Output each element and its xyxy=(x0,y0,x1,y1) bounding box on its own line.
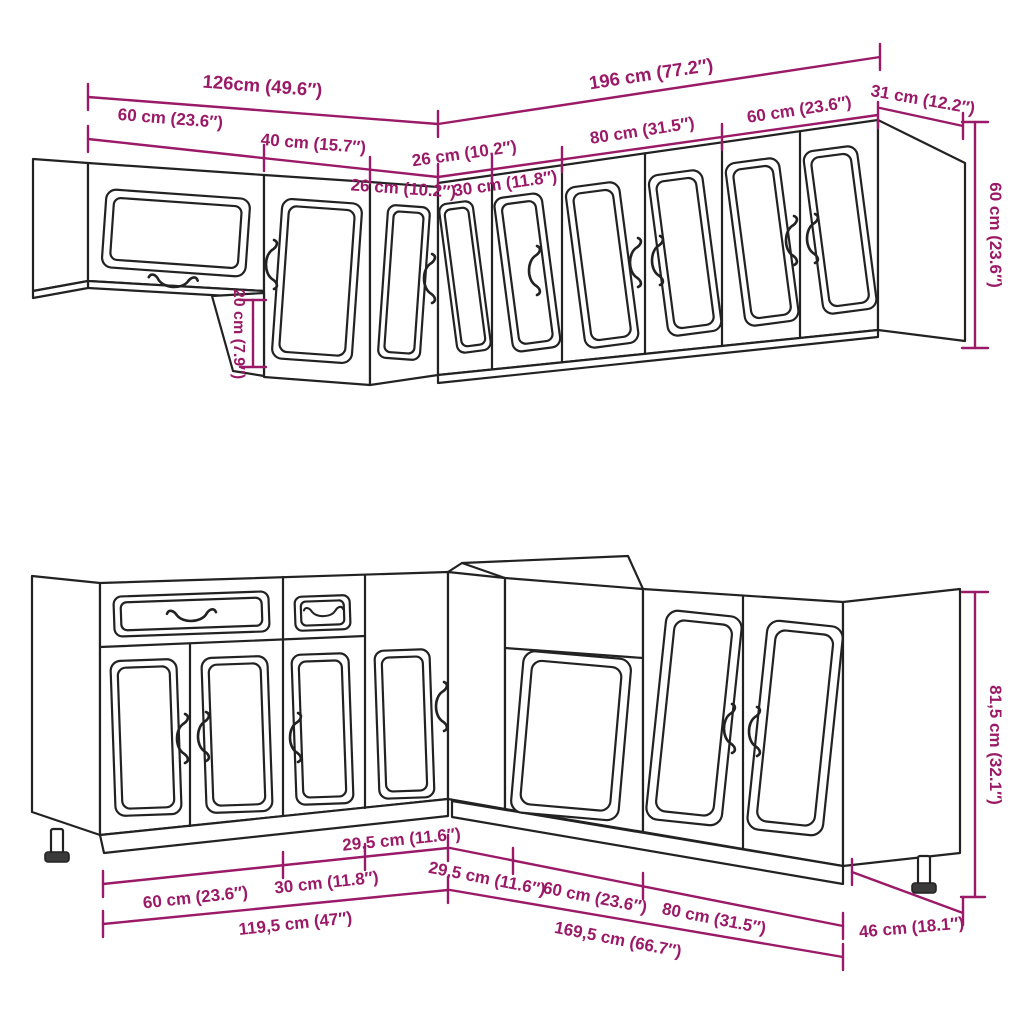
dim-wall-40: 40 cm (15.7″) xyxy=(260,130,367,157)
dim-wall-height-60: 60 cm (23.6″) xyxy=(986,182,1005,287)
dim-base-30: 30 cm (11.8″) xyxy=(273,868,379,898)
base-foot-right xyxy=(912,856,936,893)
base-60-drawer xyxy=(113,591,269,636)
base-60-door-right xyxy=(201,656,272,813)
base-foot-left xyxy=(45,829,69,862)
base-cabinets xyxy=(32,556,960,893)
base-corner-door xyxy=(374,649,434,799)
dim-wall-26-corner: 26 cm (10.2″) xyxy=(411,137,518,170)
diagram-canvas: 126cm (49.6″) 196 cm (77.2″) 60 cm (23.6… xyxy=(0,0,1024,1024)
base-30-drawer xyxy=(294,595,350,631)
dim-base-60-left: 60 cm (23.6″) xyxy=(142,883,249,913)
base-left-side-panel xyxy=(32,576,100,835)
base-corner-filler xyxy=(448,572,505,809)
dim-wall-60-left: 60 cm (23.6″) xyxy=(117,105,224,132)
base-60-door-left xyxy=(110,659,181,816)
dim-base-depth-46: 46 cm (18.1″) xyxy=(858,913,965,941)
dim-base-80: 80 cm (31.5″) xyxy=(660,899,767,938)
dim-wall-step-20: 20 cm (7.9″) xyxy=(230,289,247,379)
dim-base-height-815: 81,5 cm (32.1″) xyxy=(986,685,1005,805)
base-right-side-panel xyxy=(843,589,960,866)
dim-wall-depth-31: 31 cm (12.2″) xyxy=(869,81,976,118)
dim-base-295-left: 29,5 cm (11.6″) xyxy=(341,824,461,854)
wall-cabinets xyxy=(33,120,965,385)
dim-base-total-1695: 169,5 cm (66.7″) xyxy=(553,918,683,961)
dim-wall-overall-right: 196 cm (77.2″) xyxy=(588,54,715,93)
wall-right-side-panel xyxy=(878,120,965,341)
dim-base-total-1195: 119,5 cm (47″) xyxy=(238,908,353,939)
kitchen-dimension-diagram: 126cm (49.6″) 196 cm (77.2″) 60 cm (23.6… xyxy=(0,0,1024,1024)
dim-wall-overall-left: 126cm (49.6″) xyxy=(202,71,323,101)
wall-60-side-panel xyxy=(33,159,88,291)
wall-40-door xyxy=(272,198,363,363)
base-sink-door xyxy=(510,650,632,821)
base-30-door xyxy=(291,653,353,805)
